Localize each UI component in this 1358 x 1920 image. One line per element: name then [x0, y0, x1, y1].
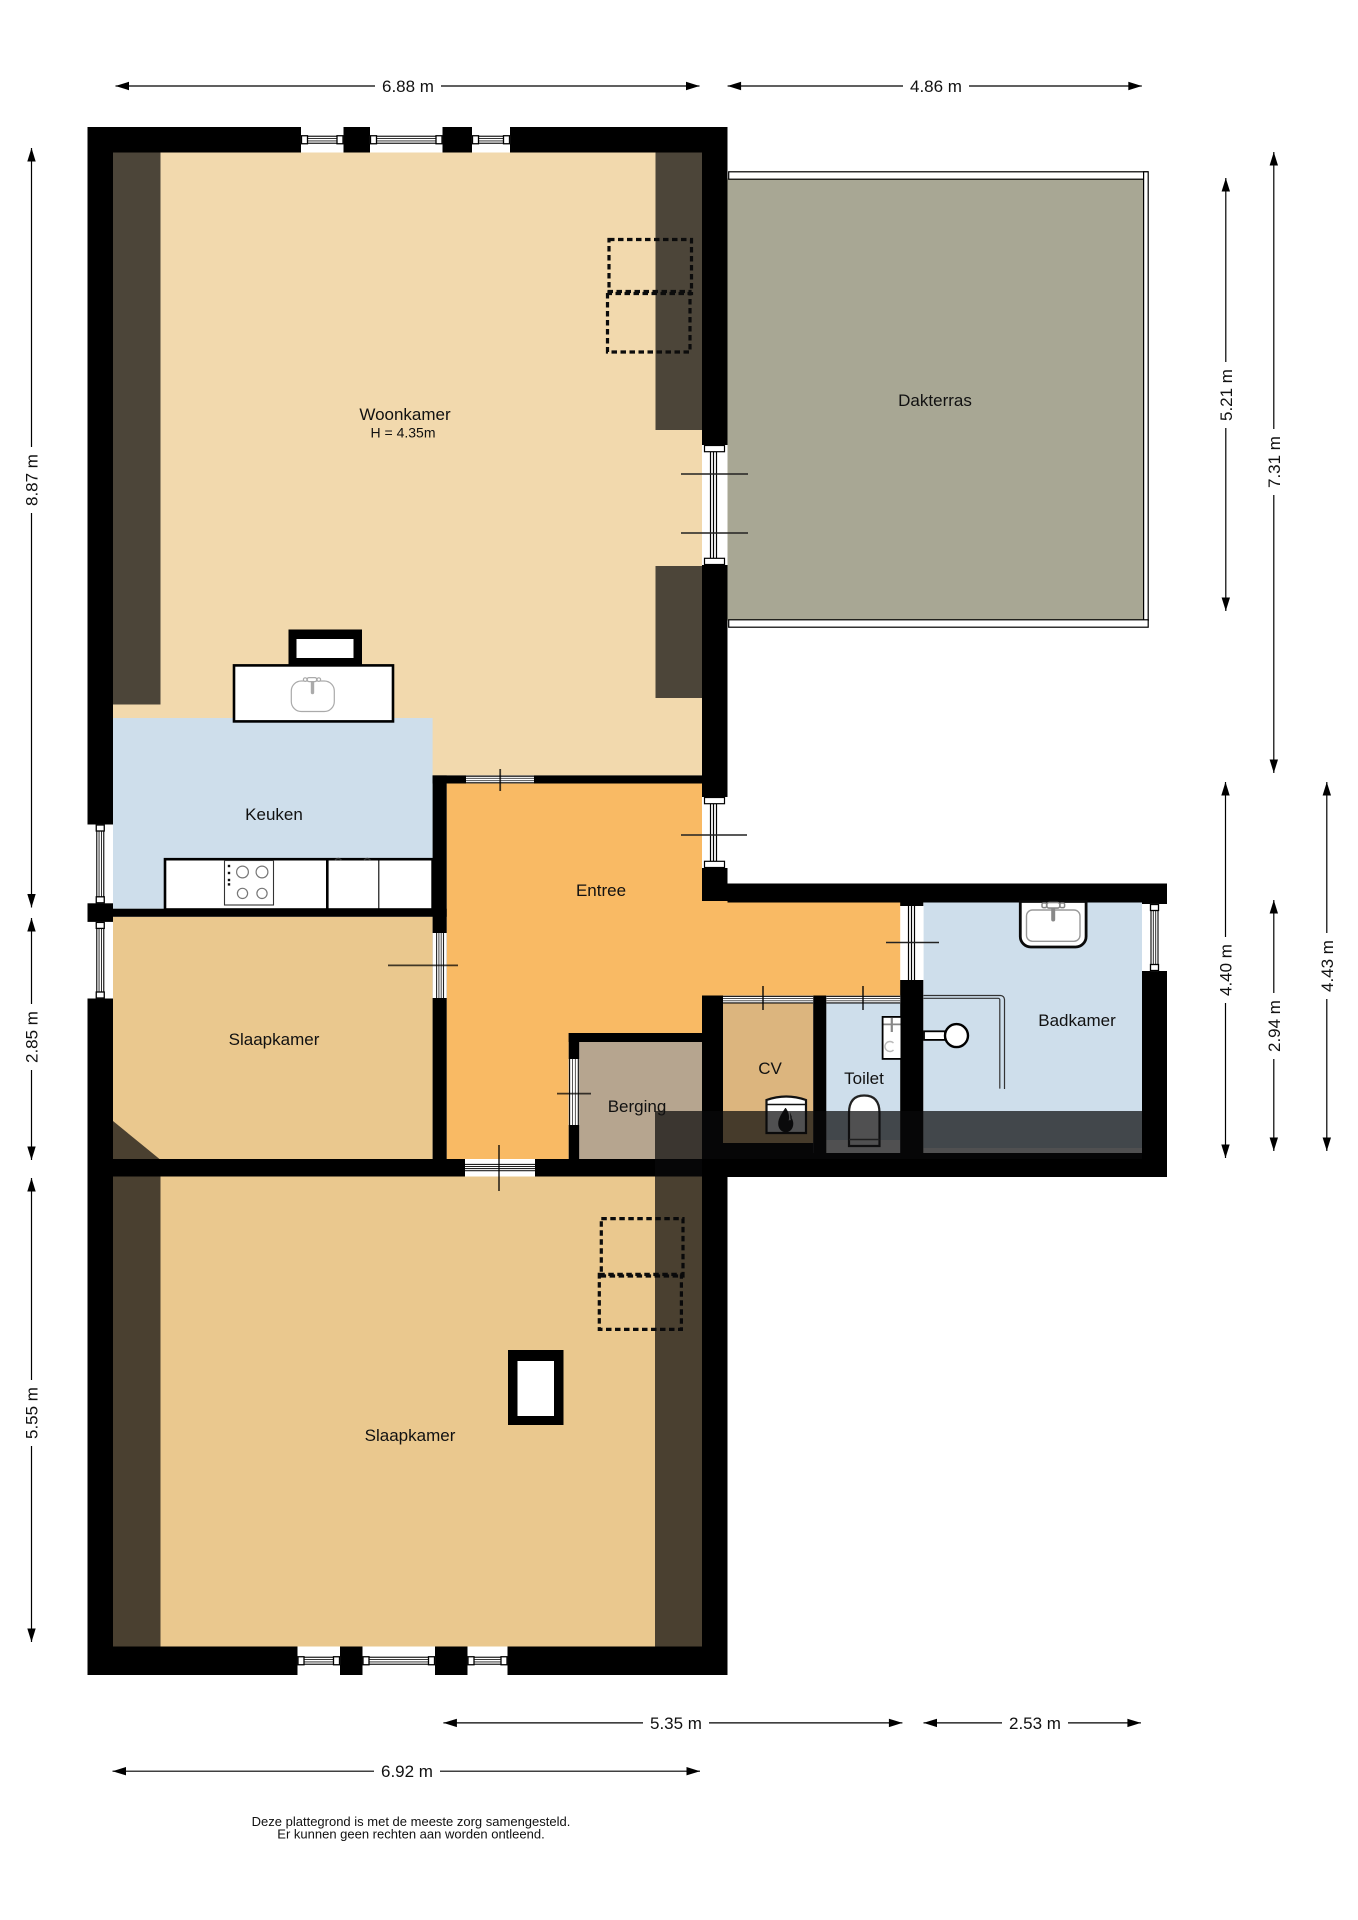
svg-text:Dakterras: Dakterras — [898, 391, 972, 410]
svg-text:Er kunnen geen rechten aan wor: Er kunnen geen rechten aan worden ontlee… — [277, 1827, 544, 1842]
svg-text:2.85 m: 2.85 m — [23, 1011, 42, 1063]
svg-text:7.31 m: 7.31 m — [1265, 436, 1284, 488]
svg-text:5.21 m: 5.21 m — [1217, 369, 1236, 421]
svg-text:2.94 m: 2.94 m — [1265, 1000, 1284, 1052]
svg-text:5.55 m: 5.55 m — [23, 1387, 42, 1439]
svg-text:CV: CV — [758, 1059, 782, 1078]
svg-text:4.43 m: 4.43 m — [1318, 940, 1337, 992]
svg-text:4.86 m: 4.86 m — [910, 77, 962, 96]
svg-text:Slaapkamer: Slaapkamer — [365, 1426, 456, 1445]
svg-text:4.40 m: 4.40 m — [1217, 944, 1236, 996]
svg-text:Badkamer: Badkamer — [1038, 1011, 1116, 1030]
svg-text:Toilet: Toilet — [844, 1069, 884, 1088]
svg-text:Woonkamer: Woonkamer — [359, 405, 451, 424]
svg-text:6.92 m: 6.92 m — [381, 1762, 433, 1781]
svg-text:Slaapkamer: Slaapkamer — [229, 1030, 320, 1049]
svg-text:5.35 m: 5.35 m — [650, 1714, 702, 1733]
svg-text:2.53 m: 2.53 m — [1009, 1714, 1061, 1733]
svg-text:6.88 m: 6.88 m — [382, 77, 434, 96]
svg-text:Entree: Entree — [576, 881, 626, 900]
svg-text:Keuken: Keuken — [245, 805, 303, 824]
svg-text:Berging: Berging — [608, 1097, 667, 1116]
svg-text:8.87 m: 8.87 m — [23, 454, 42, 506]
svg-text:H = 4.35m: H = 4.35m — [371, 425, 436, 441]
